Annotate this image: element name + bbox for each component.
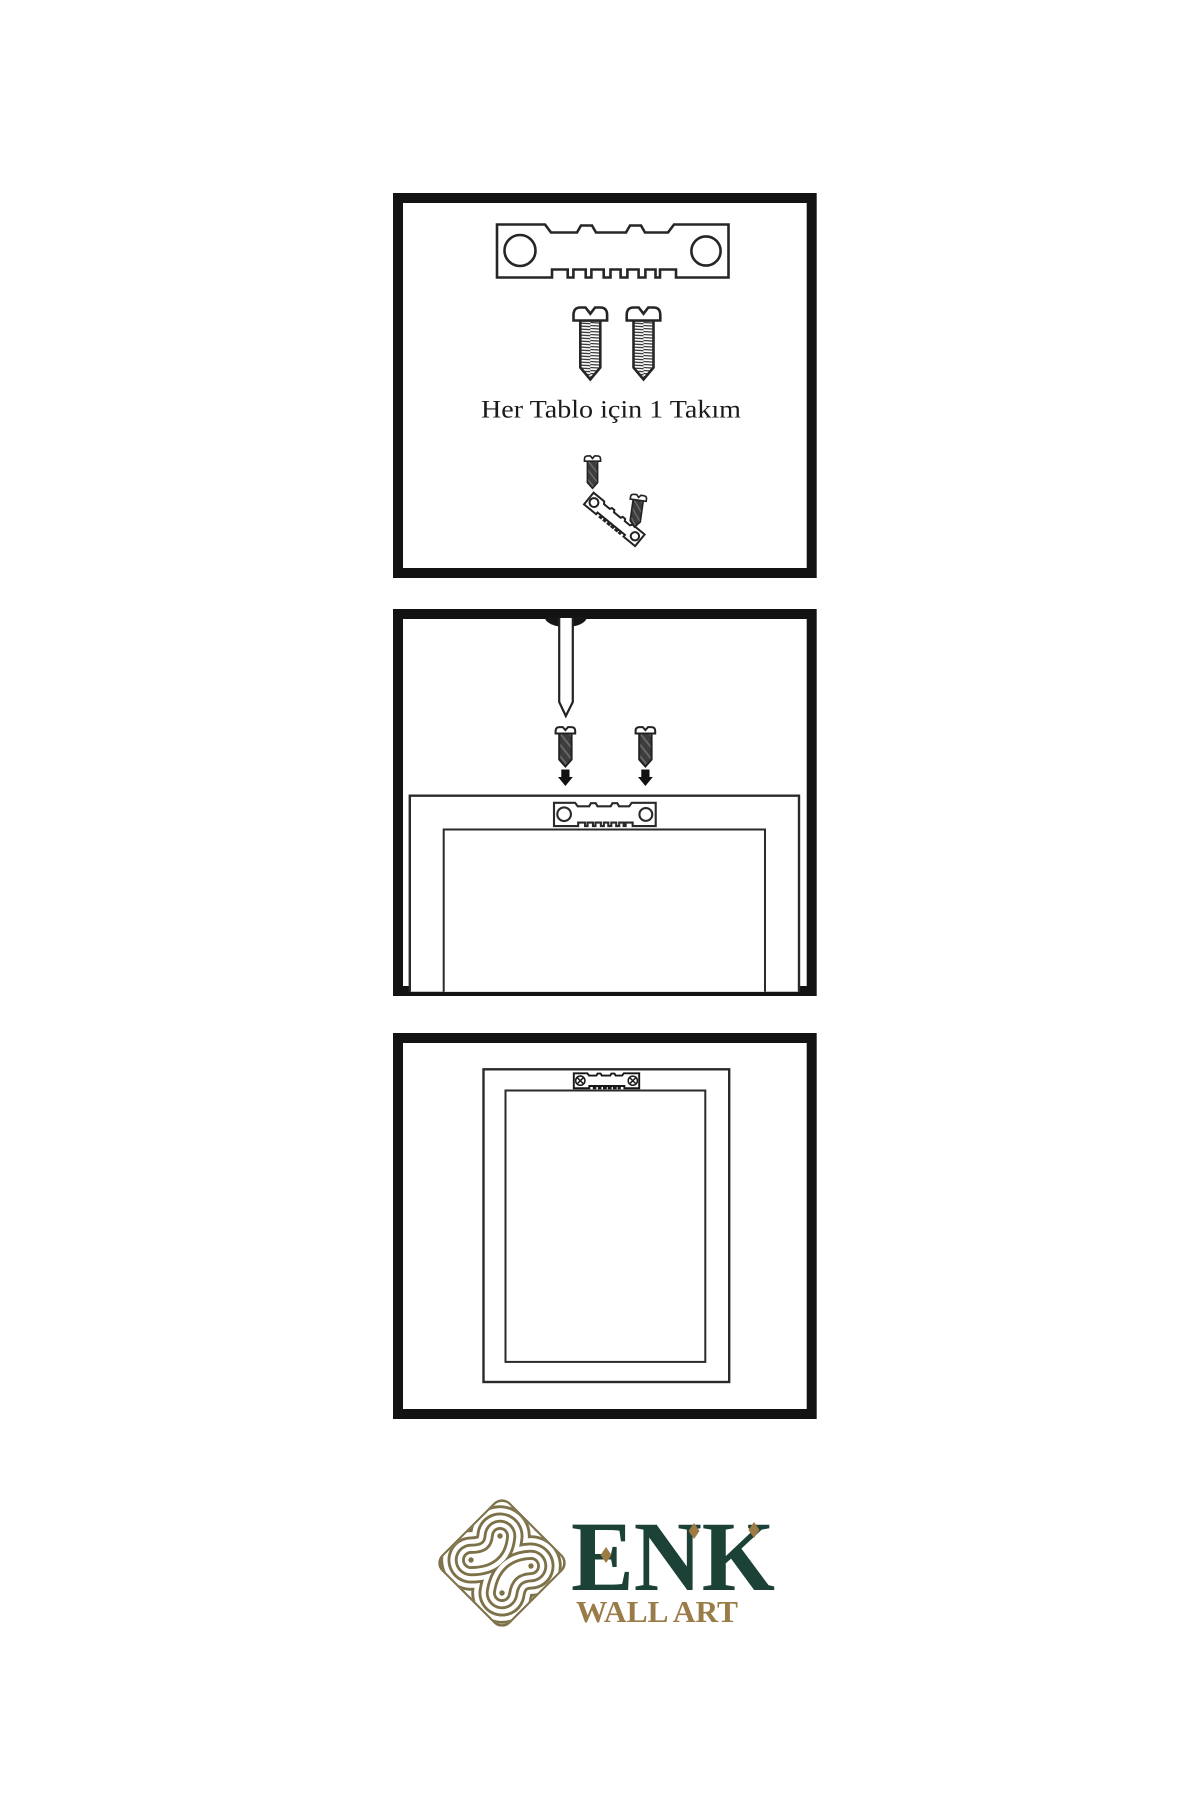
svg-text:Her Tablo için 1 Takım: Her Tablo için 1 Takım bbox=[481, 397, 742, 424]
svg-text:WALL ART: WALL ART bbox=[576, 1594, 738, 1629]
